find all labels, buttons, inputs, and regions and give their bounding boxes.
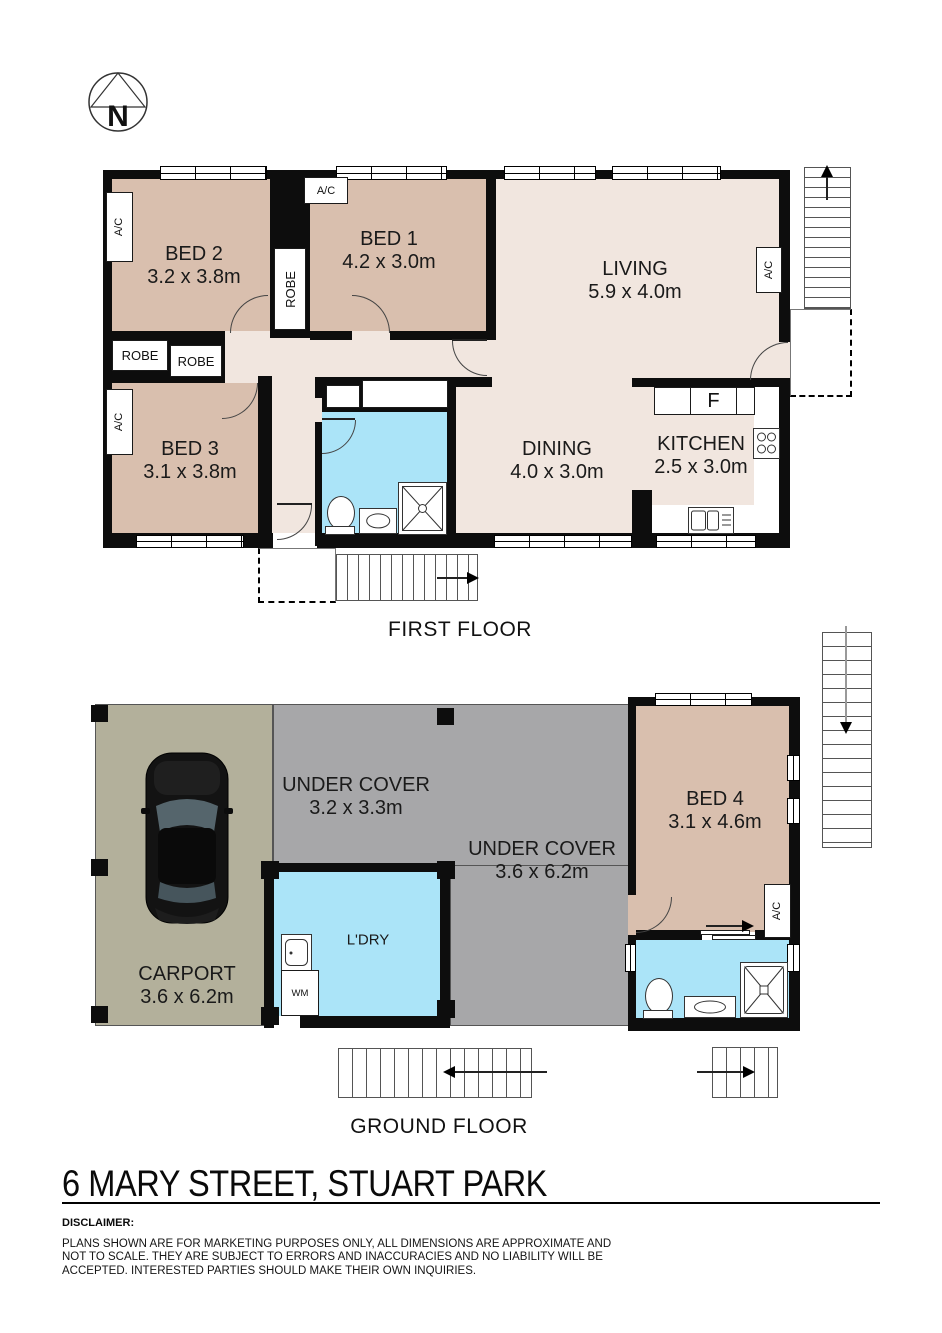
sliding-door-arrow [706,925,744,927]
wall [632,490,652,548]
page-title: 6 MARY STREET, STUART PARK [62,1163,547,1205]
room-label-bed4: BED 43.1 x 4.6m [668,788,761,834]
ac-unit: A/C [304,177,348,204]
ground-floor-caption: GROUND FLOOR [350,1115,528,1139]
disclaimer-line: NOT TO SCALE. THEY ARE SUBJECT TO ERRORS… [62,1251,611,1264]
wall [258,376,272,540]
room-label-under-cover-2: UNDER COVER3.6 x 6.2m [468,838,616,884]
room-label-laundry: L'DRY [347,932,390,949]
robe-cupboard: ROBE [274,248,306,330]
vanity-icon [684,996,736,1018]
under-cover-2-fill [450,865,630,1026]
disclaimer-body: PLANS SHOWN ARE FOR MARKETING PURPOSES O… [62,1238,611,1278]
room-label-carport: CARPORT3.6 x 6.2m [138,963,235,1009]
ac-unit: A/C [764,884,791,938]
window [160,166,267,180]
pillar [261,861,279,879]
kitchen-sink-icon [688,507,734,539]
linen-cupboard [326,385,360,408]
pillar [437,861,455,879]
room-label-living: LIVING5.9 x 4.0m [588,258,681,304]
wall [264,863,274,1028]
disclaimer-line: ACCEPTED. INTERESTED PARTIES SHOULD MAKE… [62,1265,611,1278]
toilet-icon [645,978,673,1014]
disclaimer-line: PLANS SHOWN ARE FOR MARKETING PURPOSES O… [62,1238,611,1251]
room-label-dining: DINING4.0 x 3.0m [510,438,603,484]
wall [789,697,800,1031]
shower-icon [740,962,788,1023]
stairs-arrow-head [743,1066,755,1078]
wall [300,1016,450,1028]
window [494,535,632,548]
pillar [91,1006,108,1023]
vanity-icon [359,508,397,534]
pillar [91,859,108,876]
wall [448,377,492,387]
cooktop-icon [753,428,780,464]
wall [486,170,496,340]
window [787,755,800,781]
window [336,166,447,180]
window [612,166,721,180]
stairs-arrow [437,577,469,579]
wall [310,331,352,340]
pillar [261,1007,279,1025]
stairs-down [822,632,872,848]
stairs-arrow-head [821,165,833,177]
stairs-arrow [455,1071,547,1073]
bed4-door-opening [628,895,636,935]
robe-cupboard: ROBE [112,340,168,371]
fridge: F [690,387,737,415]
floorplan-page: N ROBE ROBE ROBE A/C A/C A/C A/C [0,0,942,1333]
ac-unit: A/C [106,389,133,455]
room-label-under-cover-1: UNDER COVER3.2 x 3.3m [282,774,430,820]
first-floor-caption: FIRST FLOOR [388,618,532,642]
window [787,944,800,972]
room-label-bed1: BED 14.2 x 3.0m [342,228,435,274]
disclaimer-heading: DISCLAIMER: [62,1217,134,1229]
toilet-icon [325,526,355,535]
room-label-bed2: BED 23.2 x 3.8m [147,243,240,289]
stairs-arrow [697,1071,745,1073]
window [625,944,636,972]
bathroom1-door-opening [315,398,322,422]
balcony-landing [790,309,852,397]
wall [447,377,456,546]
toilet-icon [643,1010,673,1019]
door-leaf [452,339,487,341]
door-leaf [322,418,355,420]
wall [628,697,636,1031]
window [504,166,596,180]
car-icon [141,748,233,933]
washing-machine: WM [281,970,319,1016]
sliding-door [712,935,756,940]
stairs-arrow-head [840,722,852,734]
compass: N [86,70,150,134]
sliding-door-arrow-head [742,920,754,932]
pillar [437,1000,455,1018]
stairs-arrow [826,176,828,200]
window [787,798,800,824]
stairs-arrow-head [467,572,479,584]
stairs-arrow-head [443,1066,455,1078]
room-label-bed3: BED 33.1 x 3.8m [143,438,236,484]
kitchen-bench [736,387,755,415]
kitchen-bench [654,387,691,415]
title-rule [62,1202,880,1204]
stairs-arrow [845,626,847,724]
wall [264,863,450,872]
door-leaf [277,503,312,505]
room-label-kitchen: KITCHEN2.5 x 3.0m [654,433,747,479]
pillar [91,705,108,722]
window [655,693,752,706]
compass-north-label: N [107,100,129,134]
robe-cupboard: ROBE [170,345,222,377]
linen-cupboard [362,380,448,408]
stairs-ground-left [338,1048,532,1098]
ac-unit: A/C [106,192,133,262]
ac-unit: A/C [756,247,782,293]
porch-landing [258,548,336,603]
window [136,535,244,548]
wall [440,863,450,1020]
pillar [437,708,454,725]
shower-icon [398,482,447,540]
toilet-icon [327,496,355,530]
